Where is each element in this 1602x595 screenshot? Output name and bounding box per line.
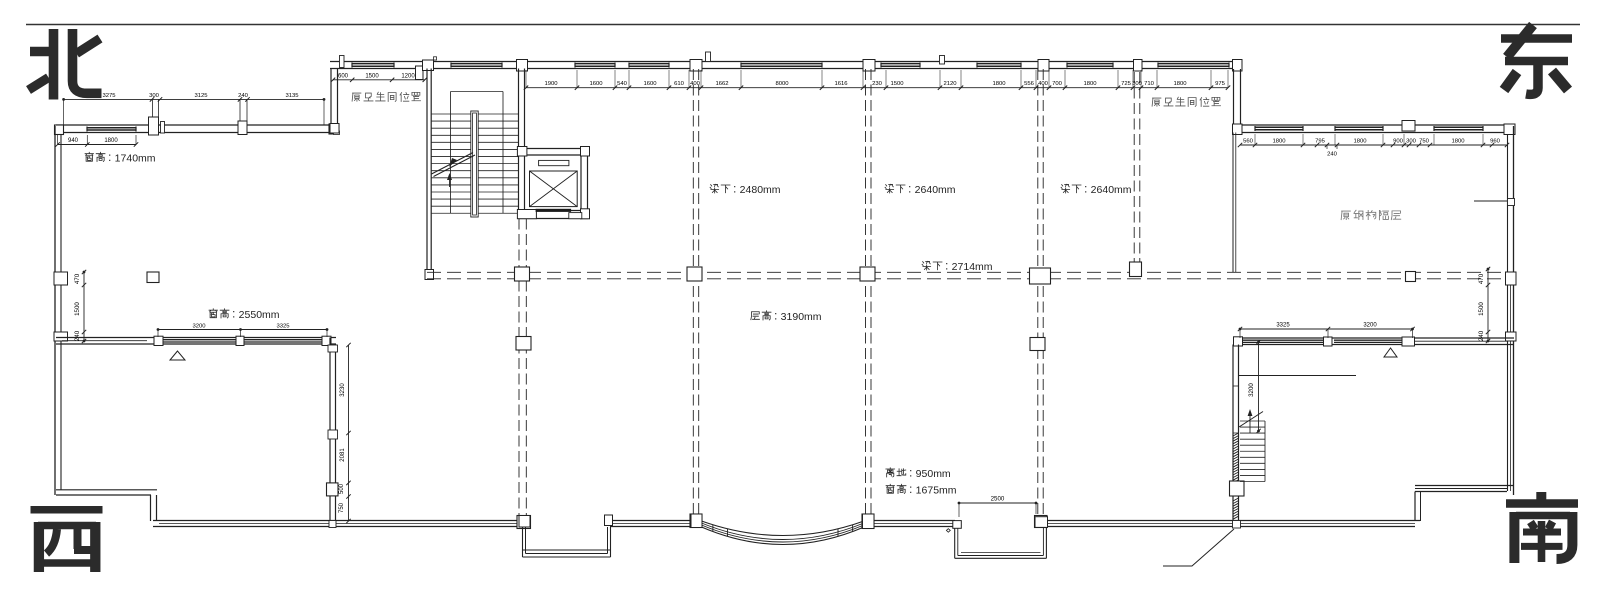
svg-text:750: 750 (339, 502, 345, 513)
svg-text:540: 540 (617, 81, 628, 87)
svg-text:750: 750 (1419, 139, 1430, 145)
svg-text:2714mm: 2714mm (952, 261, 993, 273)
svg-text:3230: 3230 (340, 383, 346, 397)
svg-text:3200: 3200 (1248, 383, 1255, 397)
svg-text:300: 300 (149, 93, 160, 99)
svg-text:795: 795 (1315, 139, 1326, 145)
svg-text:1800: 1800 (104, 138, 118, 144)
svg-text:1800: 1800 (1272, 139, 1286, 145)
svg-text:1616: 1616 (834, 81, 848, 87)
svg-text:2500: 2500 (991, 496, 1005, 503)
svg-text:300: 300 (1406, 139, 1417, 145)
svg-text:2640mm: 2640mm (1091, 184, 1132, 196)
svg-text:1800: 1800 (992, 81, 1006, 87)
svg-text:240: 240 (238, 93, 249, 99)
svg-text:940: 940 (68, 138, 79, 144)
svg-text:3200: 3200 (192, 323, 206, 329)
svg-text:556: 556 (1024, 81, 1035, 87)
svg-text::: : (1084, 184, 1087, 196)
svg-text:1740mm: 1740mm (115, 152, 156, 164)
svg-text:470: 470 (1478, 273, 1485, 284)
svg-text:470: 470 (74, 273, 81, 284)
svg-text:1200: 1200 (401, 74, 415, 80)
svg-text:2480mm: 2480mm (740, 184, 781, 196)
svg-text:500: 500 (339, 483, 345, 494)
svg-text:1500: 1500 (890, 81, 904, 87)
svg-text:610: 610 (674, 81, 685, 87)
svg-text::: : (945, 261, 948, 273)
svg-text:950mm: 950mm (916, 468, 951, 480)
svg-text:3200: 3200 (1363, 323, 1377, 329)
svg-text:300: 300 (1132, 81, 1143, 87)
svg-text:1900: 1900 (544, 81, 558, 87)
svg-text:1800: 1800 (1173, 81, 1187, 87)
svg-text:3135: 3135 (285, 93, 299, 99)
svg-text::: : (908, 184, 911, 196)
svg-text:1500: 1500 (1478, 302, 1485, 316)
svg-text:240: 240 (74, 330, 81, 341)
svg-text:2550mm: 2550mm (239, 309, 280, 321)
svg-text:3325: 3325 (1276, 323, 1290, 329)
svg-text:230: 230 (872, 81, 883, 87)
svg-text:1500: 1500 (74, 302, 81, 316)
svg-text:725: 725 (1121, 81, 1132, 87)
svg-text:1800: 1800 (1083, 81, 1097, 87)
svg-text:710: 710 (1144, 81, 1155, 87)
svg-text:8000: 8000 (775, 81, 789, 87)
svg-text:2081: 2081 (340, 448, 346, 462)
svg-text::: : (733, 184, 736, 196)
svg-text:3190mm: 3190mm (781, 311, 822, 323)
svg-text::: : (108, 152, 111, 164)
svg-text::: : (232, 309, 235, 321)
svg-text:2120: 2120 (943, 81, 957, 87)
svg-text:1800: 1800 (1353, 139, 1367, 145)
svg-text::: : (909, 484, 912, 496)
svg-text:2640mm: 2640mm (915, 184, 956, 196)
svg-text:600: 600 (338, 74, 349, 80)
svg-text:3275: 3275 (102, 93, 116, 99)
svg-text:1675mm: 1675mm (916, 484, 957, 496)
svg-text:975: 975 (1215, 81, 1226, 87)
svg-text:560: 560 (1243, 139, 1254, 145)
svg-text:240: 240 (1327, 152, 1338, 158)
svg-text:1600: 1600 (589, 81, 603, 87)
svg-text::: : (774, 311, 777, 323)
svg-text:400: 400 (690, 81, 701, 87)
svg-text:1662: 1662 (715, 81, 728, 87)
svg-text:3125: 3125 (194, 93, 208, 99)
svg-text:3325: 3325 (276, 323, 290, 329)
svg-text:1800: 1800 (1451, 139, 1465, 145)
svg-text:700: 700 (1052, 81, 1063, 87)
svg-text:1500: 1500 (365, 74, 379, 80)
svg-text:900: 900 (1393, 139, 1404, 145)
svg-text::: : (909, 468, 912, 480)
svg-text:960: 960 (1490, 139, 1501, 145)
svg-text:1600: 1600 (643, 81, 657, 87)
svg-text:400: 400 (1038, 81, 1049, 87)
svg-text:240: 240 (1478, 330, 1485, 341)
